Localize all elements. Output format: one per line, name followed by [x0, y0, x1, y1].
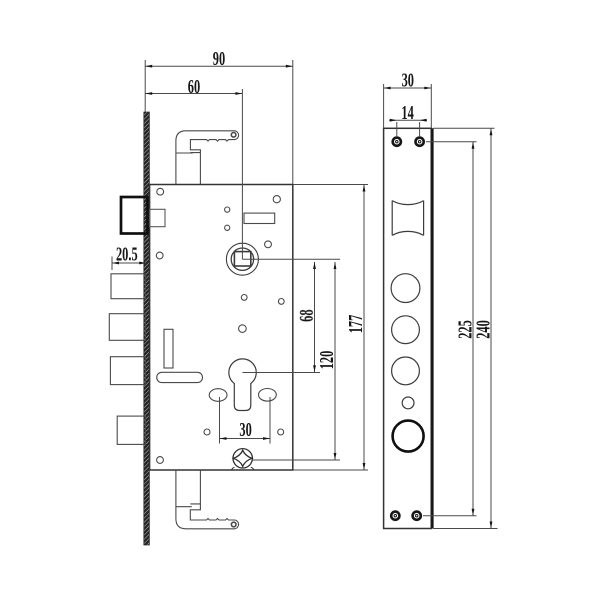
svg-text:177: 177 — [344, 315, 367, 334]
svg-text:30: 30 — [239, 418, 251, 441]
svg-text:240: 240 — [471, 320, 494, 339]
svg-text:20.5: 20.5 — [116, 242, 138, 265]
svg-text:120: 120 — [315, 351, 338, 370]
svg-text:68: 68 — [295, 309, 318, 321]
svg-text:90: 90 — [213, 47, 225, 70]
svg-text:30: 30 — [402, 68, 414, 91]
svg-text:60: 60 — [188, 75, 200, 98]
svg-text:14: 14 — [401, 101, 413, 124]
